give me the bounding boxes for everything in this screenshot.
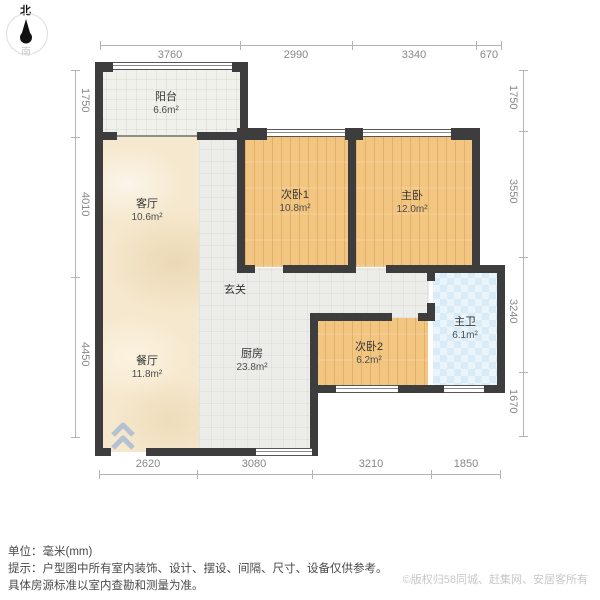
wall (237, 136, 245, 273)
master-bath-window (444, 385, 484, 393)
dim-label: 1750 (79, 88, 91, 112)
room-name: 主卫 (435, 316, 495, 329)
wall (310, 385, 336, 393)
dim-label: 3080 (214, 458, 294, 470)
room-area: 10.6m² (107, 211, 187, 224)
room-name: 主卧 (372, 190, 452, 203)
dim-label: 3240 (507, 299, 519, 323)
room-name: 厨房 (212, 348, 292, 361)
dim-tick (71, 70, 80, 71)
dim-tick (312, 470, 313, 479)
dim-line (99, 474, 501, 475)
room-area: 6.2m² (330, 354, 408, 367)
room-label-bedroom1: 次卧1 10.8m² (255, 189, 335, 215)
room-area: 11.8m² (107, 368, 187, 381)
dim-tick (519, 131, 528, 132)
wall (484, 385, 505, 393)
dim-label: 4450 (79, 342, 91, 366)
wall (497, 265, 505, 393)
dim-label: 2990 (256, 49, 336, 61)
dim-label: 4010 (79, 192, 91, 216)
kitchen-window (256, 448, 312, 456)
dim-tick (197, 470, 198, 479)
wall (237, 265, 255, 273)
wall (348, 136, 356, 273)
dim-label: 3550 (507, 179, 519, 203)
room-area: 23.8m² (212, 361, 292, 374)
wall (418, 313, 435, 321)
balcony-window (113, 62, 232, 70)
dim-line (523, 70, 524, 436)
room-label-foyer: 玄关 (205, 284, 265, 297)
dim-tick (519, 372, 528, 373)
dim-label: 3210 (331, 458, 411, 470)
room-name: 餐厅 (107, 355, 187, 368)
dim-label: 2620 (108, 458, 188, 470)
dim-tick (500, 470, 501, 479)
room-label-master-bath: 主卫 6.1m² (435, 316, 495, 342)
dim-label: 1670 (507, 389, 519, 413)
dim-tick (519, 257, 528, 258)
footer-unit-note: 单位：毫米(mm) (8, 543, 92, 559)
dim-tick (240, 41, 241, 50)
wall (95, 64, 103, 140)
room-name: 客厅 (107, 198, 187, 211)
room-area: 6.1m² (435, 329, 495, 342)
room-name: 玄关 (205, 284, 265, 297)
room-name: 阳台 (126, 91, 206, 104)
dim-label: 1750 (507, 85, 519, 109)
master-bedroom-window (363, 129, 451, 137)
room-name: 次卧1 (255, 189, 335, 202)
bedroom2-window (336, 385, 398, 393)
room-area: 12.0m² (372, 203, 452, 216)
wall (427, 265, 505, 273)
wall (283, 265, 356, 273)
footer-tip-line2: 具体房源标准以室内查勘和测量为准。 (8, 577, 204, 593)
compass-needle-icon (19, 19, 33, 45)
floor-plan-canvas: 北 南 (0, 0, 600, 600)
bedroom1-window (267, 129, 345, 137)
room-label-dining: 餐厅 11.8m² (107, 355, 187, 381)
footer-tip-line1: 提示：户型图中所有室内装饰、设计、摆设、间隔、尺寸、设备仅供参考。 (8, 560, 388, 576)
kitchen-floor (199, 316, 312, 452)
dim-label: 1850 (426, 458, 506, 470)
wall (146, 448, 256, 456)
room-label-kitchen: 厨房 23.8m² (212, 348, 292, 374)
wall (310, 313, 392, 321)
dim-tick (71, 277, 80, 278)
balcony-sliding-door (117, 135, 197, 137)
wall (427, 265, 435, 281)
compass-south-label: 南 (21, 43, 31, 58)
room-label-master: 主卧 12.0m² (372, 190, 452, 216)
dim-tick (352, 41, 353, 50)
dim-tick (431, 470, 432, 479)
entry-arrow-icon (108, 421, 138, 453)
room-name: 次卧2 (330, 341, 408, 354)
dim-line (75, 70, 76, 437)
room-label-living: 客厅 10.6m² (107, 198, 187, 224)
wall (472, 128, 480, 273)
wall (398, 385, 444, 393)
dim-tick (71, 437, 80, 438)
dim-label: 3340 (374, 49, 454, 61)
dim-tick (99, 470, 100, 479)
dim-tick (71, 137, 80, 138)
room-label-balcony: 阳台 6.6m² (126, 91, 206, 117)
dim-tick (519, 70, 528, 71)
room-area: 6.6m² (126, 104, 206, 117)
dim-line (100, 45, 502, 46)
wall (95, 132, 103, 456)
dim-tick (519, 436, 528, 437)
room-area: 10.8m² (255, 202, 335, 215)
dim-label: 3760 (130, 49, 210, 61)
living-dining-floor (103, 136, 199, 452)
dim-tick (100, 41, 101, 50)
copyright-note: ©版权归58同城、赶集网、安居客所有 (403, 571, 588, 587)
room-label-bedroom2: 次卧2 6.2m² (330, 341, 408, 367)
dim-label: 670 (464, 49, 514, 61)
